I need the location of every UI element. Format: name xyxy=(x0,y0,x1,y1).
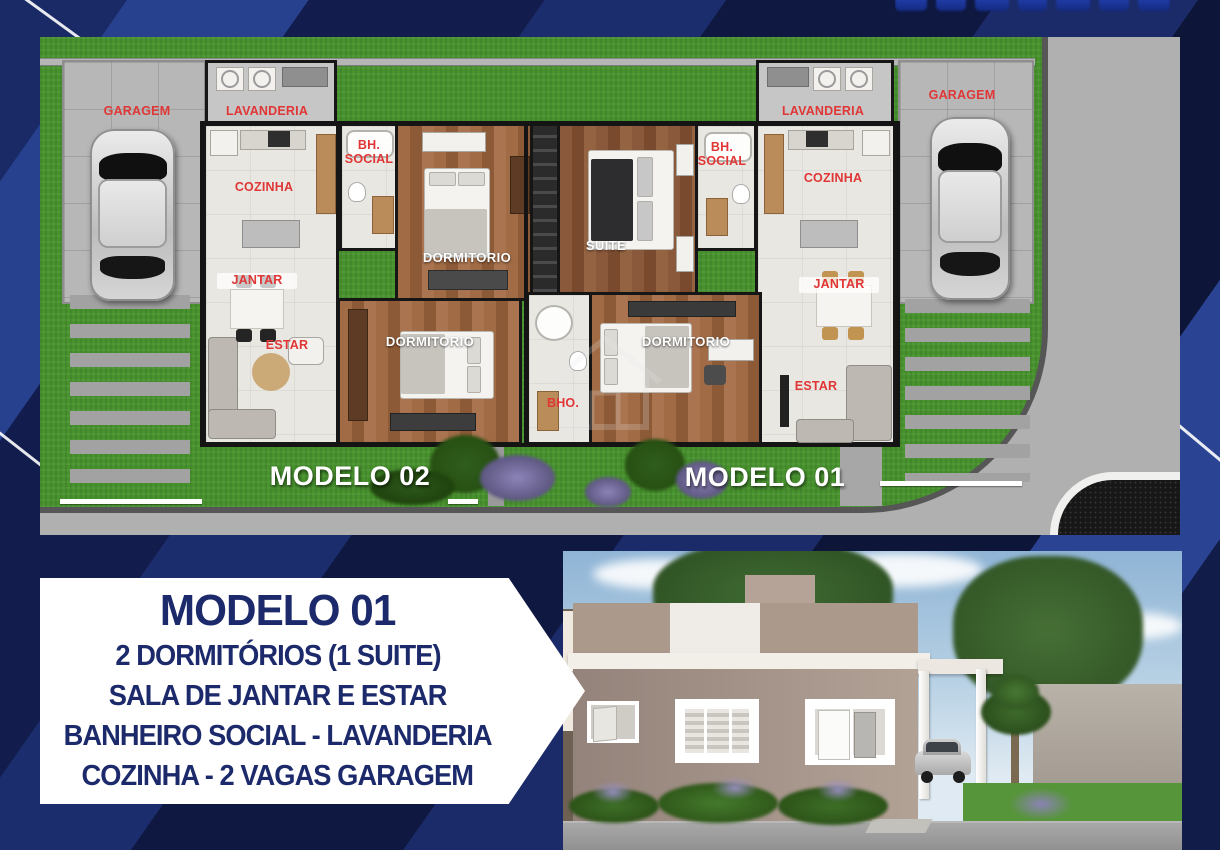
room-label-bathroom-left: BH. SOCIAL xyxy=(340,139,398,166)
room-label-laundry-right: LAVANDERIA xyxy=(777,105,869,119)
room-label-bedroom-right: DORMITORIO xyxy=(636,334,736,349)
room-label-dining-right: JANTAR xyxy=(799,277,879,293)
banner-spec-line: SALA DE JANTAR E ESTAR xyxy=(109,676,447,716)
flower-cluster xyxy=(818,779,858,801)
car-side-view xyxy=(915,739,971,783)
flower-cluster xyxy=(713,777,757,799)
entry-walkway xyxy=(865,819,932,833)
car-rear-window xyxy=(940,252,1001,276)
suite-closet xyxy=(530,123,560,295)
room-label-living-left: ESTAR xyxy=(247,339,327,353)
car-windshield xyxy=(99,153,167,182)
room-label-dining-left: JANTAR xyxy=(217,273,297,289)
model-02-label: MODELO 02 xyxy=(250,461,450,492)
flower-cluster xyxy=(1011,789,1071,819)
model-01-label: MODELO 01 xyxy=(665,462,865,493)
rug-left xyxy=(252,353,290,391)
room-label-kitchen-left: COZINHA xyxy=(218,181,310,195)
room-label-suite-bathroom: BHO. xyxy=(523,397,603,411)
room-label-living-right: ESTAR xyxy=(776,380,856,394)
room-label-garage-right: GARAGEM xyxy=(917,89,1007,103)
room-label-bathroom-right: BH. SOCIAL xyxy=(693,141,751,168)
flower-cluster xyxy=(593,781,633,803)
sofa-left-seat xyxy=(208,409,276,439)
front-fence-left xyxy=(60,499,202,504)
suite-room xyxy=(557,123,698,295)
window-blinds xyxy=(675,699,759,763)
driveway-pavers-right xyxy=(905,299,1030,482)
car-windshield xyxy=(938,143,1002,174)
bedroom-top-left xyxy=(395,123,535,301)
carport-beam xyxy=(918,659,1003,674)
car-roof xyxy=(100,181,165,246)
dining-table-left xyxy=(230,289,284,329)
room-label-bedroom-bottom-left: DORMITORIO xyxy=(380,334,480,349)
car-rear-window xyxy=(100,256,165,278)
room-label-suite: SUITE xyxy=(556,238,656,253)
dining-chair xyxy=(822,327,838,340)
banner-spec-line: BANHEIRO SOCIAL - LAVANDERIA xyxy=(63,716,491,756)
driveway-pavers-left xyxy=(70,295,190,497)
partial-logo-icon xyxy=(895,0,1170,13)
window-kitchen xyxy=(805,699,895,765)
flower-cluster xyxy=(480,455,555,501)
sofa-right-seat xyxy=(796,419,854,443)
room-label-laundry-left: LAVANDERIA xyxy=(221,105,313,119)
banner-spec-line: 2 DORMITÓRIOS (1 SUITE) xyxy=(115,636,440,676)
palm-tree xyxy=(981,679,1051,799)
house-render-photo xyxy=(563,551,1182,850)
flower-cluster xyxy=(585,477,631,507)
perimeter-wall xyxy=(1033,684,1182,784)
flyer-canvas: GARAGEM LAVANDERIA COZINHA BH. SOCIAL JA… xyxy=(0,0,1220,850)
car-right-top-view xyxy=(930,117,1010,300)
window-small xyxy=(587,701,639,743)
floorplan-image: GARAGEM LAVANDERIA COZINHA BH. SOCIAL JA… xyxy=(40,37,1180,535)
dining-chair xyxy=(848,327,864,340)
front-fence-right xyxy=(880,481,1022,486)
banner-spec-line: COZINHA - 2 VAGAS GARAGEM xyxy=(82,756,473,796)
car-left-top-view xyxy=(90,129,175,301)
bedroom-bottom-left xyxy=(337,298,522,445)
specs-banner: MODELO 01 2 DORMITÓRIOS (1 SUITE) SALA D… xyxy=(40,578,585,804)
room-label-garage-left: GARAGEM xyxy=(92,105,182,119)
car-roof xyxy=(940,172,1001,242)
house-upper-white-section xyxy=(670,603,760,657)
front-gate-center xyxy=(448,499,478,504)
room-label-kitchen-right: COZINHA xyxy=(787,172,879,186)
room-label-bedroom-top-left: DORMITORIO xyxy=(417,250,517,265)
banner-title: MODELO 01 xyxy=(160,586,395,636)
